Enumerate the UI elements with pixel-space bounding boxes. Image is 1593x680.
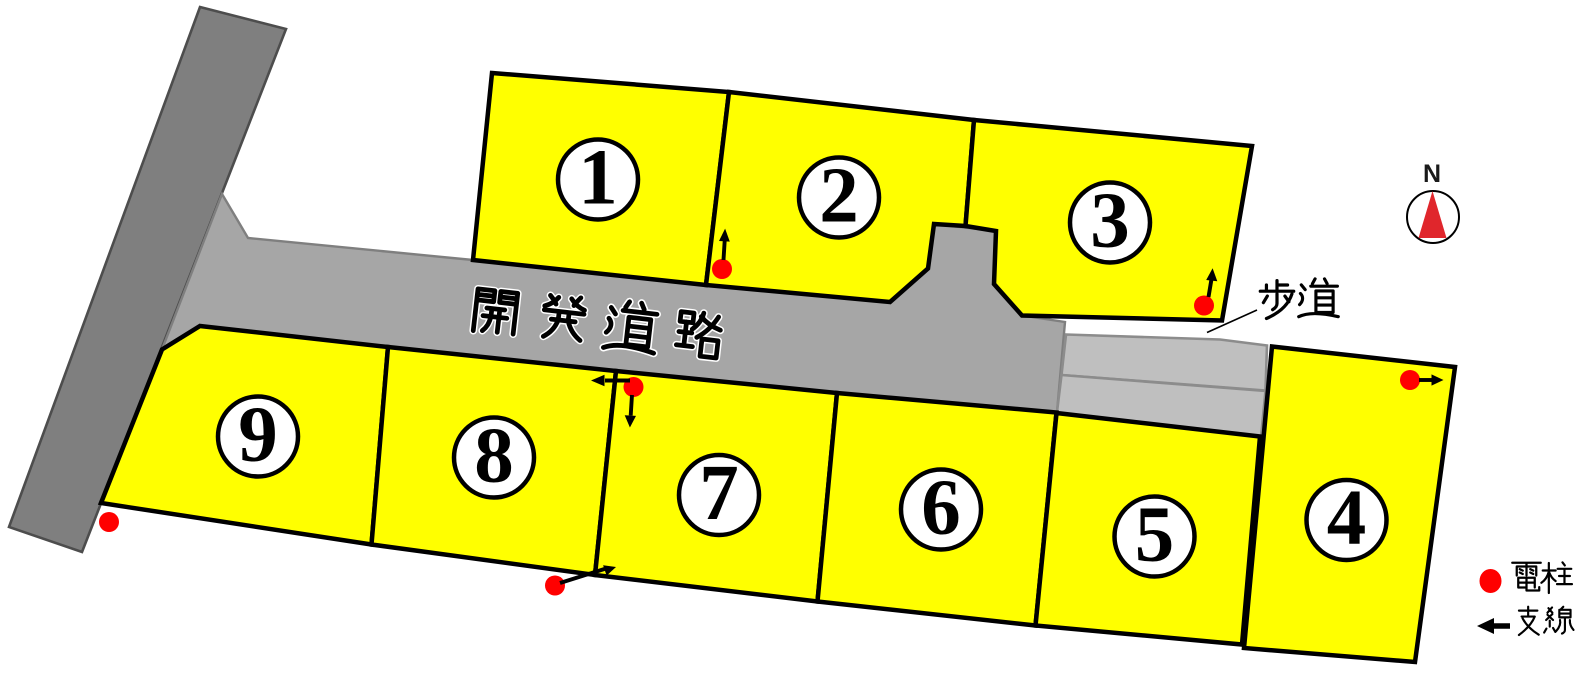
svg-text:8: 8 — [474, 413, 514, 500]
svg-text:9: 9 — [238, 392, 278, 479]
svg-text:3: 3 — [1090, 178, 1130, 265]
svg-text:5: 5 — [1135, 492, 1175, 579]
svg-text:N: N — [1423, 160, 1441, 188]
svg-text:4: 4 — [1327, 475, 1367, 562]
svg-text:1: 1 — [578, 135, 618, 222]
svg-text:7: 7 — [699, 450, 739, 537]
svg-text:6: 6 — [921, 465, 961, 552]
svg-text:2: 2 — [819, 153, 859, 240]
